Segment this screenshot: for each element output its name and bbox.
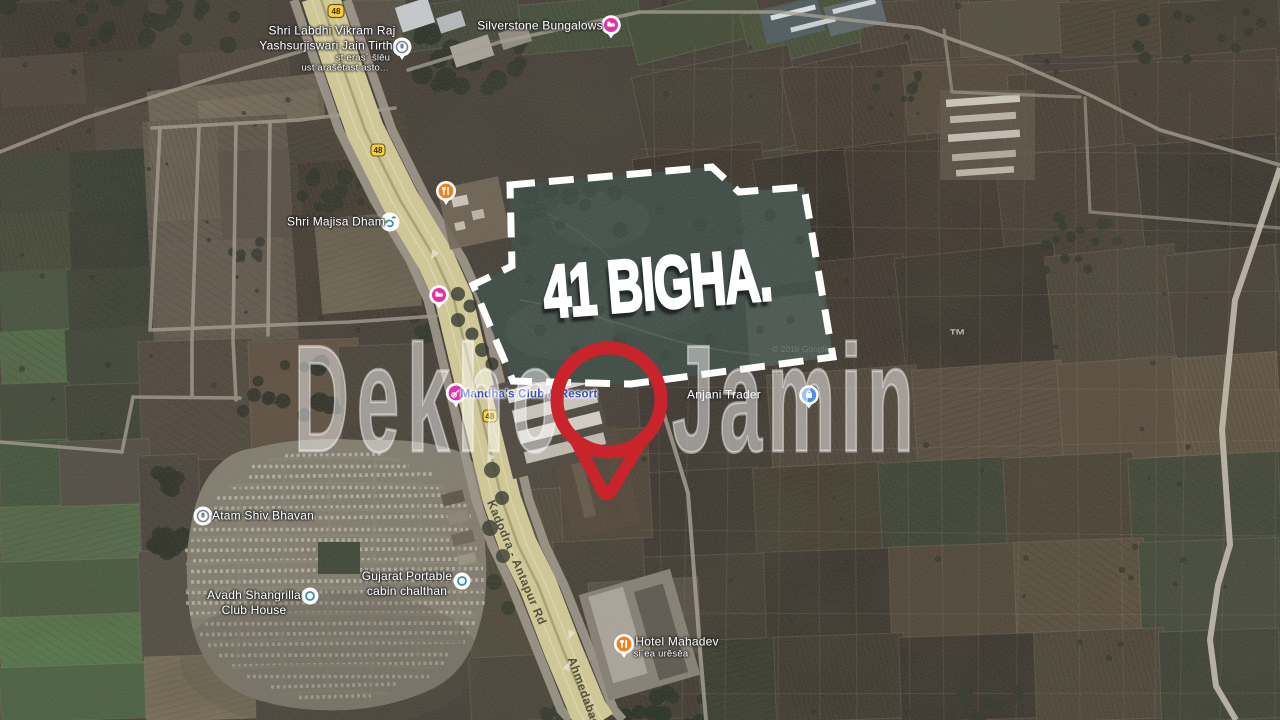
svg-text:48: 48 (332, 7, 341, 16)
svg-text:48: 48 (374, 146, 383, 155)
